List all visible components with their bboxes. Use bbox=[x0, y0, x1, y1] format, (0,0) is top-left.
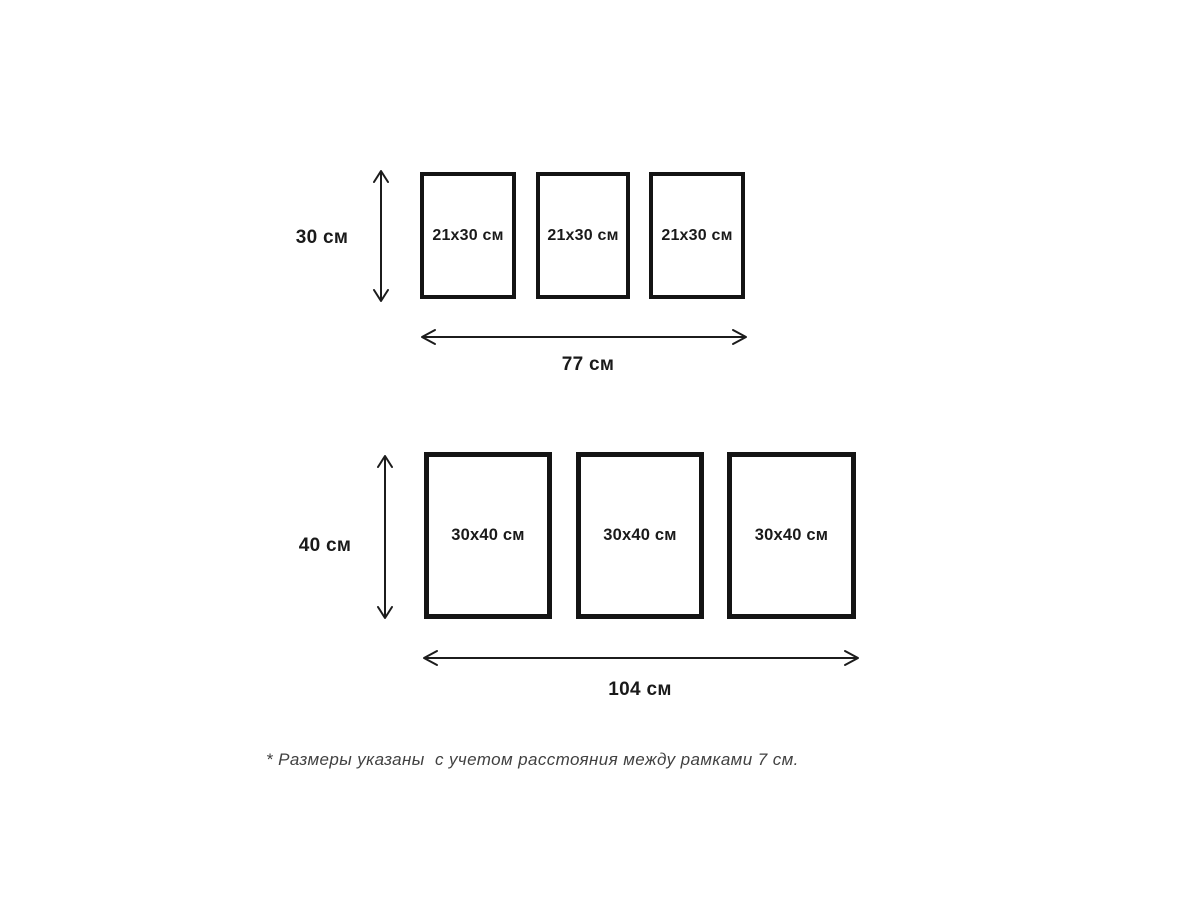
frame-30x40-3: 30x40 см bbox=[727, 452, 856, 619]
width-dimension-label-set2: 104 см bbox=[595, 679, 685, 701]
frame-size-label: 30x40 см bbox=[603, 526, 676, 545]
frame-size-label: 30x40 см bbox=[451, 526, 524, 545]
frame-size-label: 21x30 см bbox=[432, 227, 503, 245]
height-arrow-set1 bbox=[370, 168, 392, 304]
frame-30x40-2: 30x40 см bbox=[576, 452, 704, 619]
width-arrow-set1 bbox=[418, 327, 750, 347]
width-arrow-set2 bbox=[420, 648, 862, 668]
height-arrow-set2 bbox=[374, 453, 396, 621]
frame-21x30-1: 21x30 см bbox=[420, 172, 516, 299]
frame-21x30-3: 21x30 см bbox=[649, 172, 745, 299]
width-dimension-label-set1: 77 см bbox=[543, 354, 633, 376]
frame-30x40-1: 30x40 см bbox=[424, 452, 552, 619]
frame-size-label: 30x40 см bbox=[755, 526, 828, 545]
footnote-spacing-note: * Размеры указаны с учетом расстояния ме… bbox=[266, 750, 799, 770]
frame-size-label: 21x30 см bbox=[661, 227, 732, 245]
height-dimension-label-set1: 30 см bbox=[282, 227, 362, 249]
frame-size-label: 21x30 см bbox=[547, 227, 618, 245]
height-dimension-label-set2: 40 см bbox=[285, 535, 365, 557]
frame-sizes-diagram: 30 см 21x30 см 21x30 см 21x30 см 77 см 4… bbox=[0, 0, 1200, 900]
frame-21x30-2: 21x30 см bbox=[536, 172, 630, 299]
